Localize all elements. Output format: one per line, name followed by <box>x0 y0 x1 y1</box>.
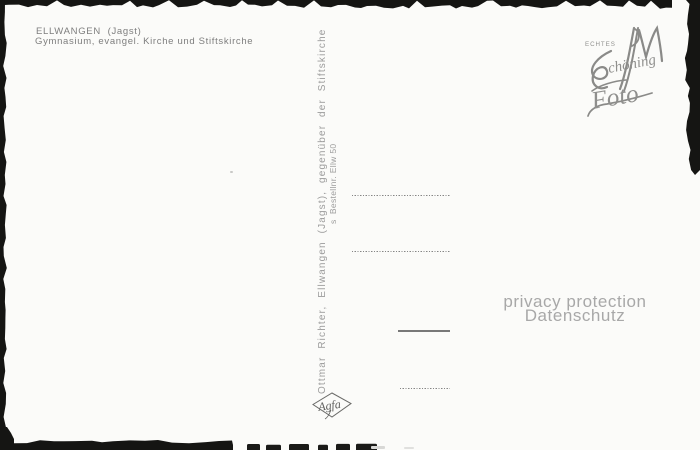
svg-text:chöning: chöning <box>607 52 658 77</box>
svg-text:Agfa: Agfa <box>316 397 341 414</box>
svg-text:ECHTES: ECHTES <box>585 41 616 48</box>
